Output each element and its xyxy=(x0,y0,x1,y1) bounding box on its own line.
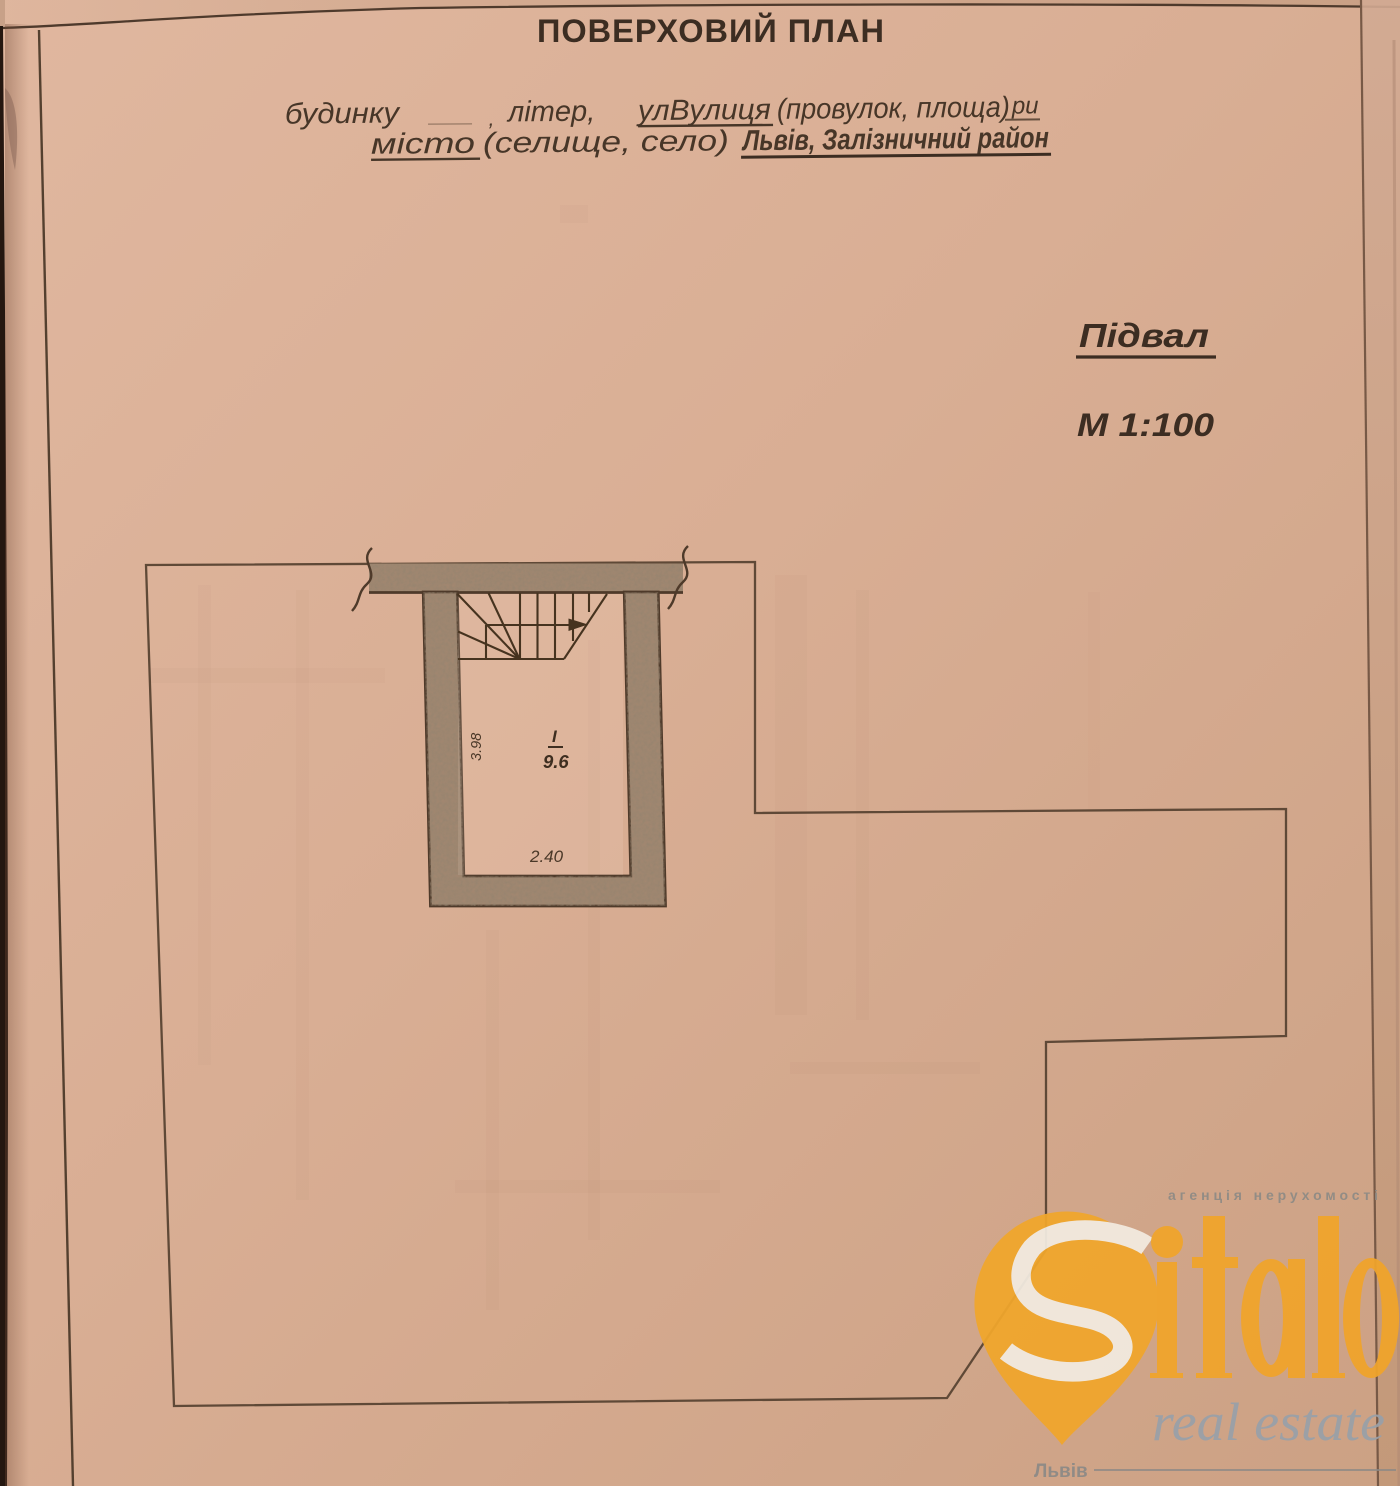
svg-text:будинку: будинку xyxy=(285,97,401,130)
svg-text:Підвал: Підвал xyxy=(1079,317,1209,354)
svg-text:М 1:100: М 1:100 xyxy=(1077,407,1214,443)
svg-text:(селище, село): (селище, село) xyxy=(483,125,729,159)
svg-text:місто: місто xyxy=(371,128,475,161)
svg-text:ПОВЕРХОВИЙ ПЛАН: ПОВЕРХОВИЙ ПЛАН xyxy=(537,13,885,49)
svg-text:real estate: real estate xyxy=(1152,1392,1385,1452)
svg-text:літер,: літер, xyxy=(506,96,596,129)
svg-text:улВулиця: улВулиця xyxy=(636,94,771,127)
svg-text:ри: ри xyxy=(1011,92,1039,119)
svg-text:(провулок, площа): (провулок, площа) xyxy=(777,92,1010,126)
svg-text:3.98: 3.98 xyxy=(469,733,485,761)
svg-text:Львів, Залізничний район: Львів, Залізничний район xyxy=(741,122,1049,157)
svg-text:агенція нерухомості: агенція нерухомості xyxy=(1168,1187,1382,1203)
svg-text:9.6: 9.6 xyxy=(543,751,569,772)
svg-text:Львів: Львів xyxy=(1034,1461,1088,1482)
svg-text:2.40: 2.40 xyxy=(529,847,564,866)
